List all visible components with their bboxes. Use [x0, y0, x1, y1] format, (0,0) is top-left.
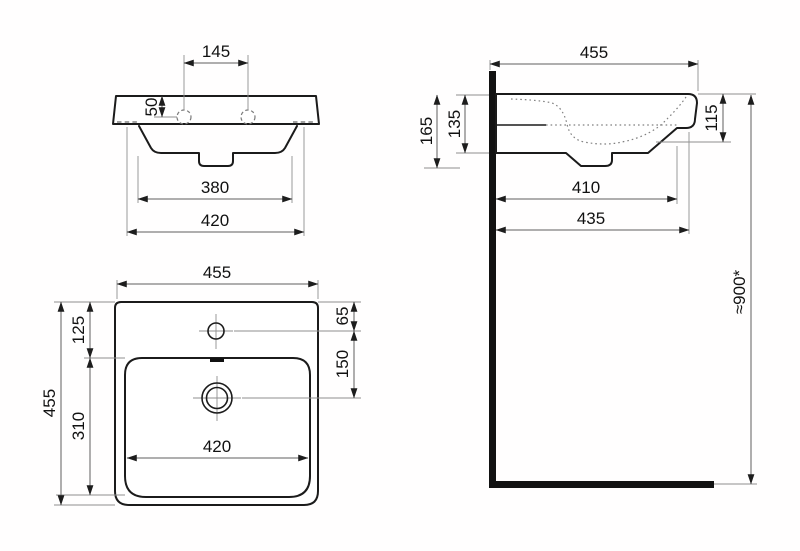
dim-label-150: 150 — [333, 350, 352, 378]
dim-label-435: 435 — [577, 209, 605, 228]
dim-label-65: 65 — [333, 307, 352, 326]
washbasin-drawing-canvas: 145 50 380 420 455 — [0, 0, 800, 551]
dim-label-135: 135 — [445, 110, 464, 138]
dim-label-455-side: 455 — [580, 43, 608, 62]
side-view: 455 165 135 115 410 435 ≈900* — [417, 43, 757, 488]
dim-label-455-plan-left: 455 — [40, 389, 59, 417]
dim-label-900: ≈900* — [730, 269, 749, 314]
floor-section — [489, 481, 714, 488]
side-profile-outline — [496, 94, 697, 166]
front-body-outline — [139, 126, 297, 166]
dim-label-310: 310 — [69, 412, 88, 440]
dim-label-165: 165 — [417, 117, 436, 145]
plan-rim-outline — [115, 302, 318, 505]
dim-label-145: 145 — [202, 42, 230, 61]
dim-label-50: 50 — [142, 98, 161, 117]
dim-label-420-plan: 420 — [203, 437, 231, 456]
dim-label-455-plan-top: 455 — [203, 263, 231, 282]
dim-label-380: 380 — [201, 178, 229, 197]
wall-section — [489, 71, 496, 488]
dim-label-125: 125 — [69, 316, 88, 344]
technical-drawing-sheet: 145 50 380 420 455 — [0, 0, 800, 551]
plan-view: 455 65 150 125 310 455 420 — [40, 263, 361, 505]
dim-label-420-front: 420 — [201, 211, 229, 230]
dim-label-410: 410 — [572, 178, 600, 197]
dim-label-115: 115 — [702, 104, 721, 131]
front-view: 145 50 380 420 — [113, 42, 319, 236]
